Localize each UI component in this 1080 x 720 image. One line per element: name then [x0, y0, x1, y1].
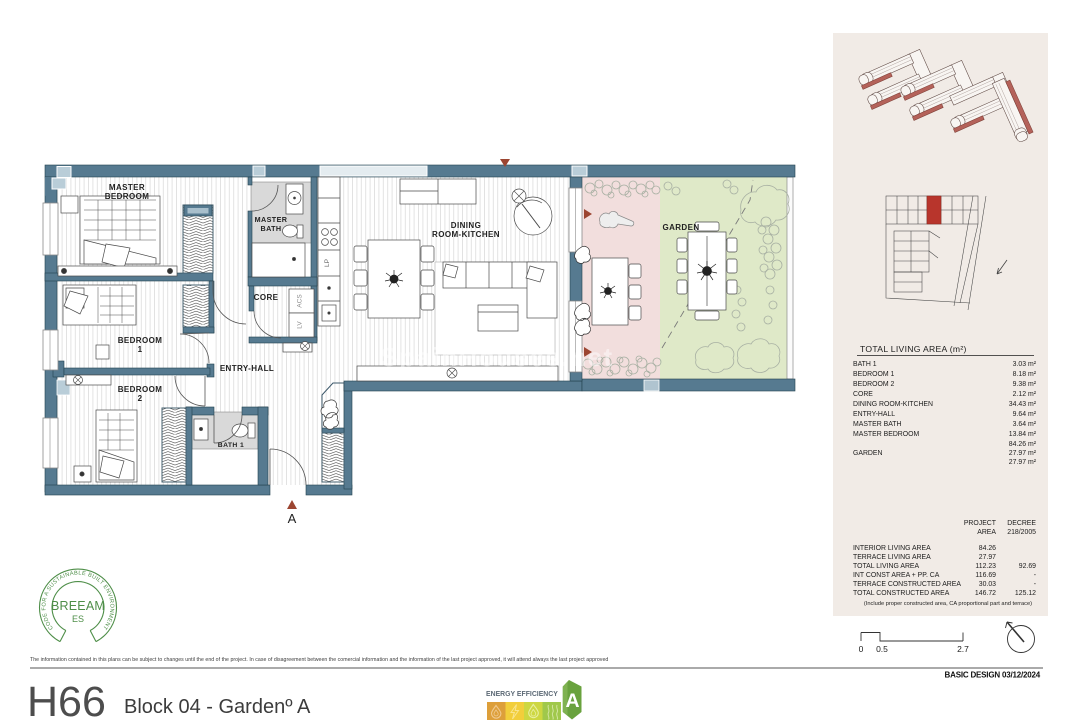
svg-text:ENTRY-HALL: ENTRY-HALL [220, 364, 274, 373]
svg-text:LV: LV [297, 321, 304, 329]
svg-text:DINING: DINING [451, 221, 481, 230]
svg-text:A: A [288, 511, 297, 526]
svg-text:DECREE: DECREE [1007, 520, 1036, 527]
svg-text:TOTAL LIVING AREA: TOTAL LIVING AREA [853, 563, 920, 570]
svg-text:INT CONST AREA + PP. CA: INT CONST AREA + PP. CA [853, 572, 940, 579]
svg-text:ES: ES [72, 614, 84, 624]
svg-text:84.26 m²: 84.26 m² [1009, 441, 1037, 448]
svg-text:9.64 m²: 9.64 m² [1013, 411, 1037, 418]
svg-text:AREA: AREA [977, 529, 996, 536]
svg-text:BEDROOM 2: BEDROOM 2 [853, 381, 895, 388]
svg-text:BREEAM: BREEAM [51, 599, 105, 613]
svg-text:-: - [1034, 572, 1036, 579]
svg-text:3.64 m²: 3.64 m² [1013, 421, 1037, 428]
svg-text:8.18 m²: 8.18 m² [1013, 371, 1037, 378]
svg-text:13.84 m²: 13.84 m² [1009, 431, 1037, 438]
svg-text:SpainHouses.net: SpainHouses.net [380, 342, 613, 372]
svg-text:DINING ROOM-KITCHEN: DINING ROOM-KITCHEN [853, 401, 933, 408]
svg-text:TOTAL LIVING AREA (m²): TOTAL LIVING AREA (m²) [860, 344, 967, 354]
svg-text:A: A [565, 690, 579, 712]
svg-text:34.43 m²: 34.43 m² [1009, 401, 1037, 408]
svg-text:ENERGY EFFICIENCY: ENERGY EFFICIENCY [486, 691, 558, 698]
svg-text:PROJECT: PROJECT [964, 520, 997, 527]
svg-text:112.23: 112.23 [975, 563, 996, 570]
svg-text:125.12: 125.12 [1015, 590, 1036, 597]
svg-text:-: - [1034, 581, 1036, 588]
svg-text:BATH 1: BATH 1 [218, 442, 244, 449]
svg-text:H66: H66 [27, 678, 106, 720]
svg-text:The information contained in t: The information contained in this plans … [30, 657, 608, 663]
svg-text:ROOM-KITCHEN: ROOM-KITCHEN [432, 230, 500, 239]
svg-text:BASIC DESIGN 03/12/2024: BASIC DESIGN 03/12/2024 [945, 671, 1041, 680]
svg-text:BEDROOM 1: BEDROOM 1 [853, 371, 895, 378]
svg-text:2: 2 [138, 394, 143, 403]
svg-text:146.72: 146.72 [975, 590, 996, 597]
svg-text:MASTER: MASTER [109, 183, 145, 192]
svg-text:30.03: 30.03 [979, 581, 996, 588]
svg-text:LP: LP [324, 259, 331, 267]
svg-text:MASTER BATH: MASTER BATH [853, 421, 902, 428]
svg-text:3.03 m²: 3.03 m² [1013, 361, 1037, 368]
svg-text:MASTER: MASTER [255, 215, 288, 224]
svg-text:1: 1 [138, 345, 143, 354]
svg-text:84.26: 84.26 [979, 545, 996, 552]
svg-text:TERRACE CONSTRUCTED AREA: TERRACE CONSTRUCTED AREA [853, 581, 961, 588]
svg-text:CORE: CORE [853, 391, 873, 398]
svg-text:ENTRY-HALL: ENTRY-HALL [853, 411, 895, 418]
svg-text:TERRACE LIVING AREA: TERRACE LIVING AREA [853, 554, 931, 561]
svg-text:TOTAL CONSTRUCTED AREA: TOTAL CONSTRUCTED AREA [853, 590, 950, 597]
svg-text:Block 04 - Gardenº A: Block 04 - Gardenº A [124, 696, 311, 718]
svg-text:27.97 m²: 27.97 m² [1009, 459, 1037, 466]
svg-text:(Include proper constructed ar: (Include proper constructed area, CA pro… [864, 601, 1032, 607]
svg-text:BEDROOM: BEDROOM [105, 192, 150, 201]
svg-text:BATH: BATH [260, 224, 281, 233]
svg-text:27.97: 27.97 [979, 554, 996, 561]
svg-text:GARDEN: GARDEN [853, 450, 883, 457]
svg-text:GARDEN: GARDEN [662, 223, 699, 232]
svg-text:2.7: 2.7 [957, 644, 969, 654]
svg-text:ACS: ACS [297, 294, 304, 308]
svg-text:0.5: 0.5 [876, 644, 888, 654]
svg-text:BEDROOM: BEDROOM [118, 336, 163, 345]
svg-text:BATH 1: BATH 1 [853, 361, 877, 368]
svg-text:2.12 m²: 2.12 m² [1013, 391, 1037, 398]
svg-text:MASTER BEDROOM: MASTER BEDROOM [853, 431, 919, 438]
svg-text:CORE: CORE [254, 293, 279, 302]
svg-text:218/2005: 218/2005 [1007, 529, 1036, 536]
svg-text:116.69: 116.69 [975, 572, 996, 579]
svg-text:27.97 m²: 27.97 m² [1009, 450, 1037, 457]
svg-text:92.69: 92.69 [1019, 563, 1036, 570]
svg-text:BEDROOM: BEDROOM [118, 385, 163, 394]
svg-text:9.38 m²: 9.38 m² [1013, 381, 1037, 388]
svg-text:0: 0 [859, 644, 864, 654]
svg-text:INTERIOR LIVING AREA: INTERIOR LIVING AREA [853, 545, 931, 552]
